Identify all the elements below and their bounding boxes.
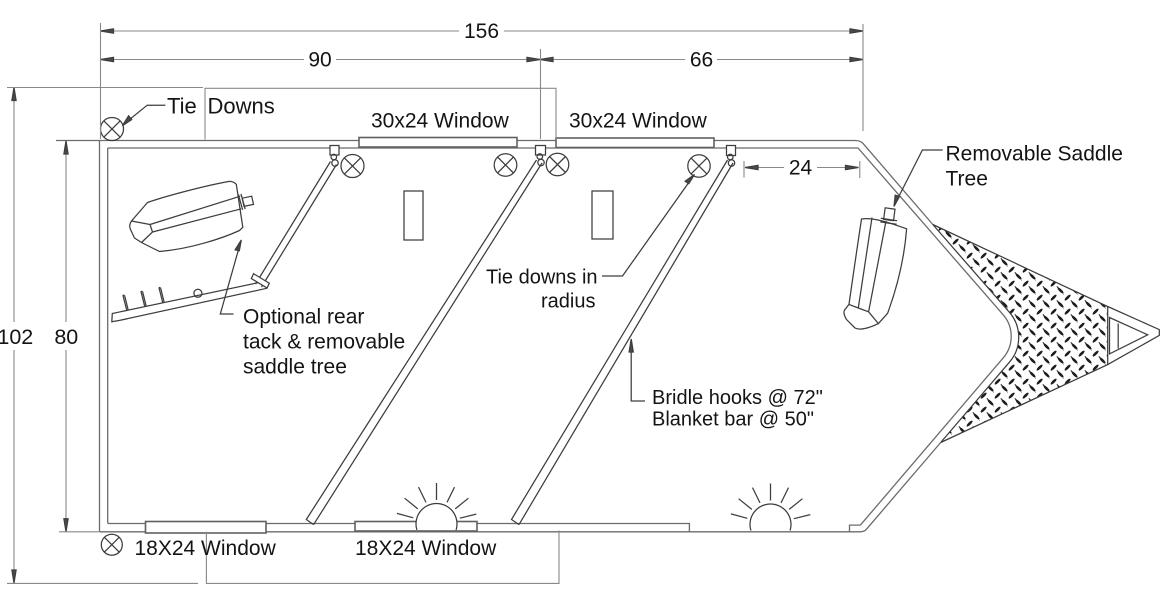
- svg-text:Downs: Downs: [208, 94, 275, 119]
- svg-text:Blanket bar @ 50": Blanket bar @ 50": [652, 409, 814, 431]
- svg-text:Bridle hooks @ 72": Bridle hooks @ 72": [652, 387, 823, 409]
- svg-text:saddle tree: saddle tree: [243, 356, 347, 379]
- svg-text:Optional rear: Optional rear: [243, 305, 364, 328]
- svg-text:tack & removable: tack & removable: [243, 331, 405, 354]
- svg-text:30x24 Window: 30x24 Window: [371, 110, 510, 133]
- svg-text:Tree: Tree: [946, 168, 988, 191]
- svg-text:80: 80: [54, 325, 78, 349]
- svg-text:102: 102: [0, 325, 33, 349]
- svg-text:Tie: Tie: [167, 94, 197, 119]
- svg-text:156: 156: [464, 20, 499, 43]
- svg-text:18X24 Window: 18X24 Window: [355, 537, 497, 560]
- svg-text:Tie downs in: Tie downs in: [486, 267, 598, 289]
- svg-text:Removable Saddle: Removable Saddle: [946, 143, 1123, 166]
- svg-text:66: 66: [690, 49, 713, 72]
- svg-text:90: 90: [308, 49, 331, 72]
- svg-text:30x24 Window: 30x24 Window: [569, 110, 708, 133]
- svg-text:18X24 Window: 18X24 Window: [135, 537, 277, 560]
- svg-text:24: 24: [789, 157, 813, 180]
- svg-text:radius: radius: [541, 291, 595, 313]
